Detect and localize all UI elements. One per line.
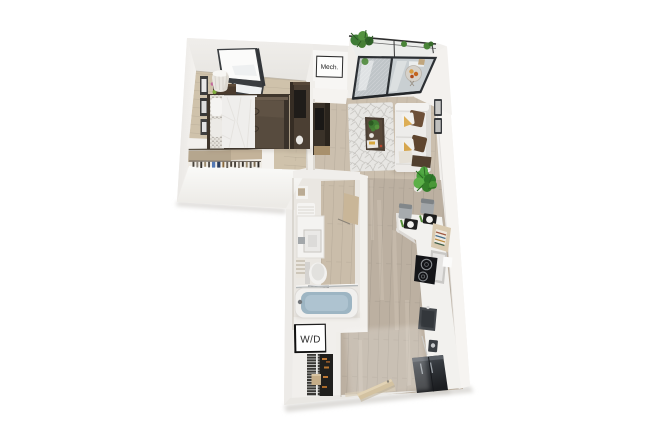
svg-text:Mech.: Mech. <box>321 64 339 71</box>
svg-text:W/D: W/D <box>300 334 321 345</box>
